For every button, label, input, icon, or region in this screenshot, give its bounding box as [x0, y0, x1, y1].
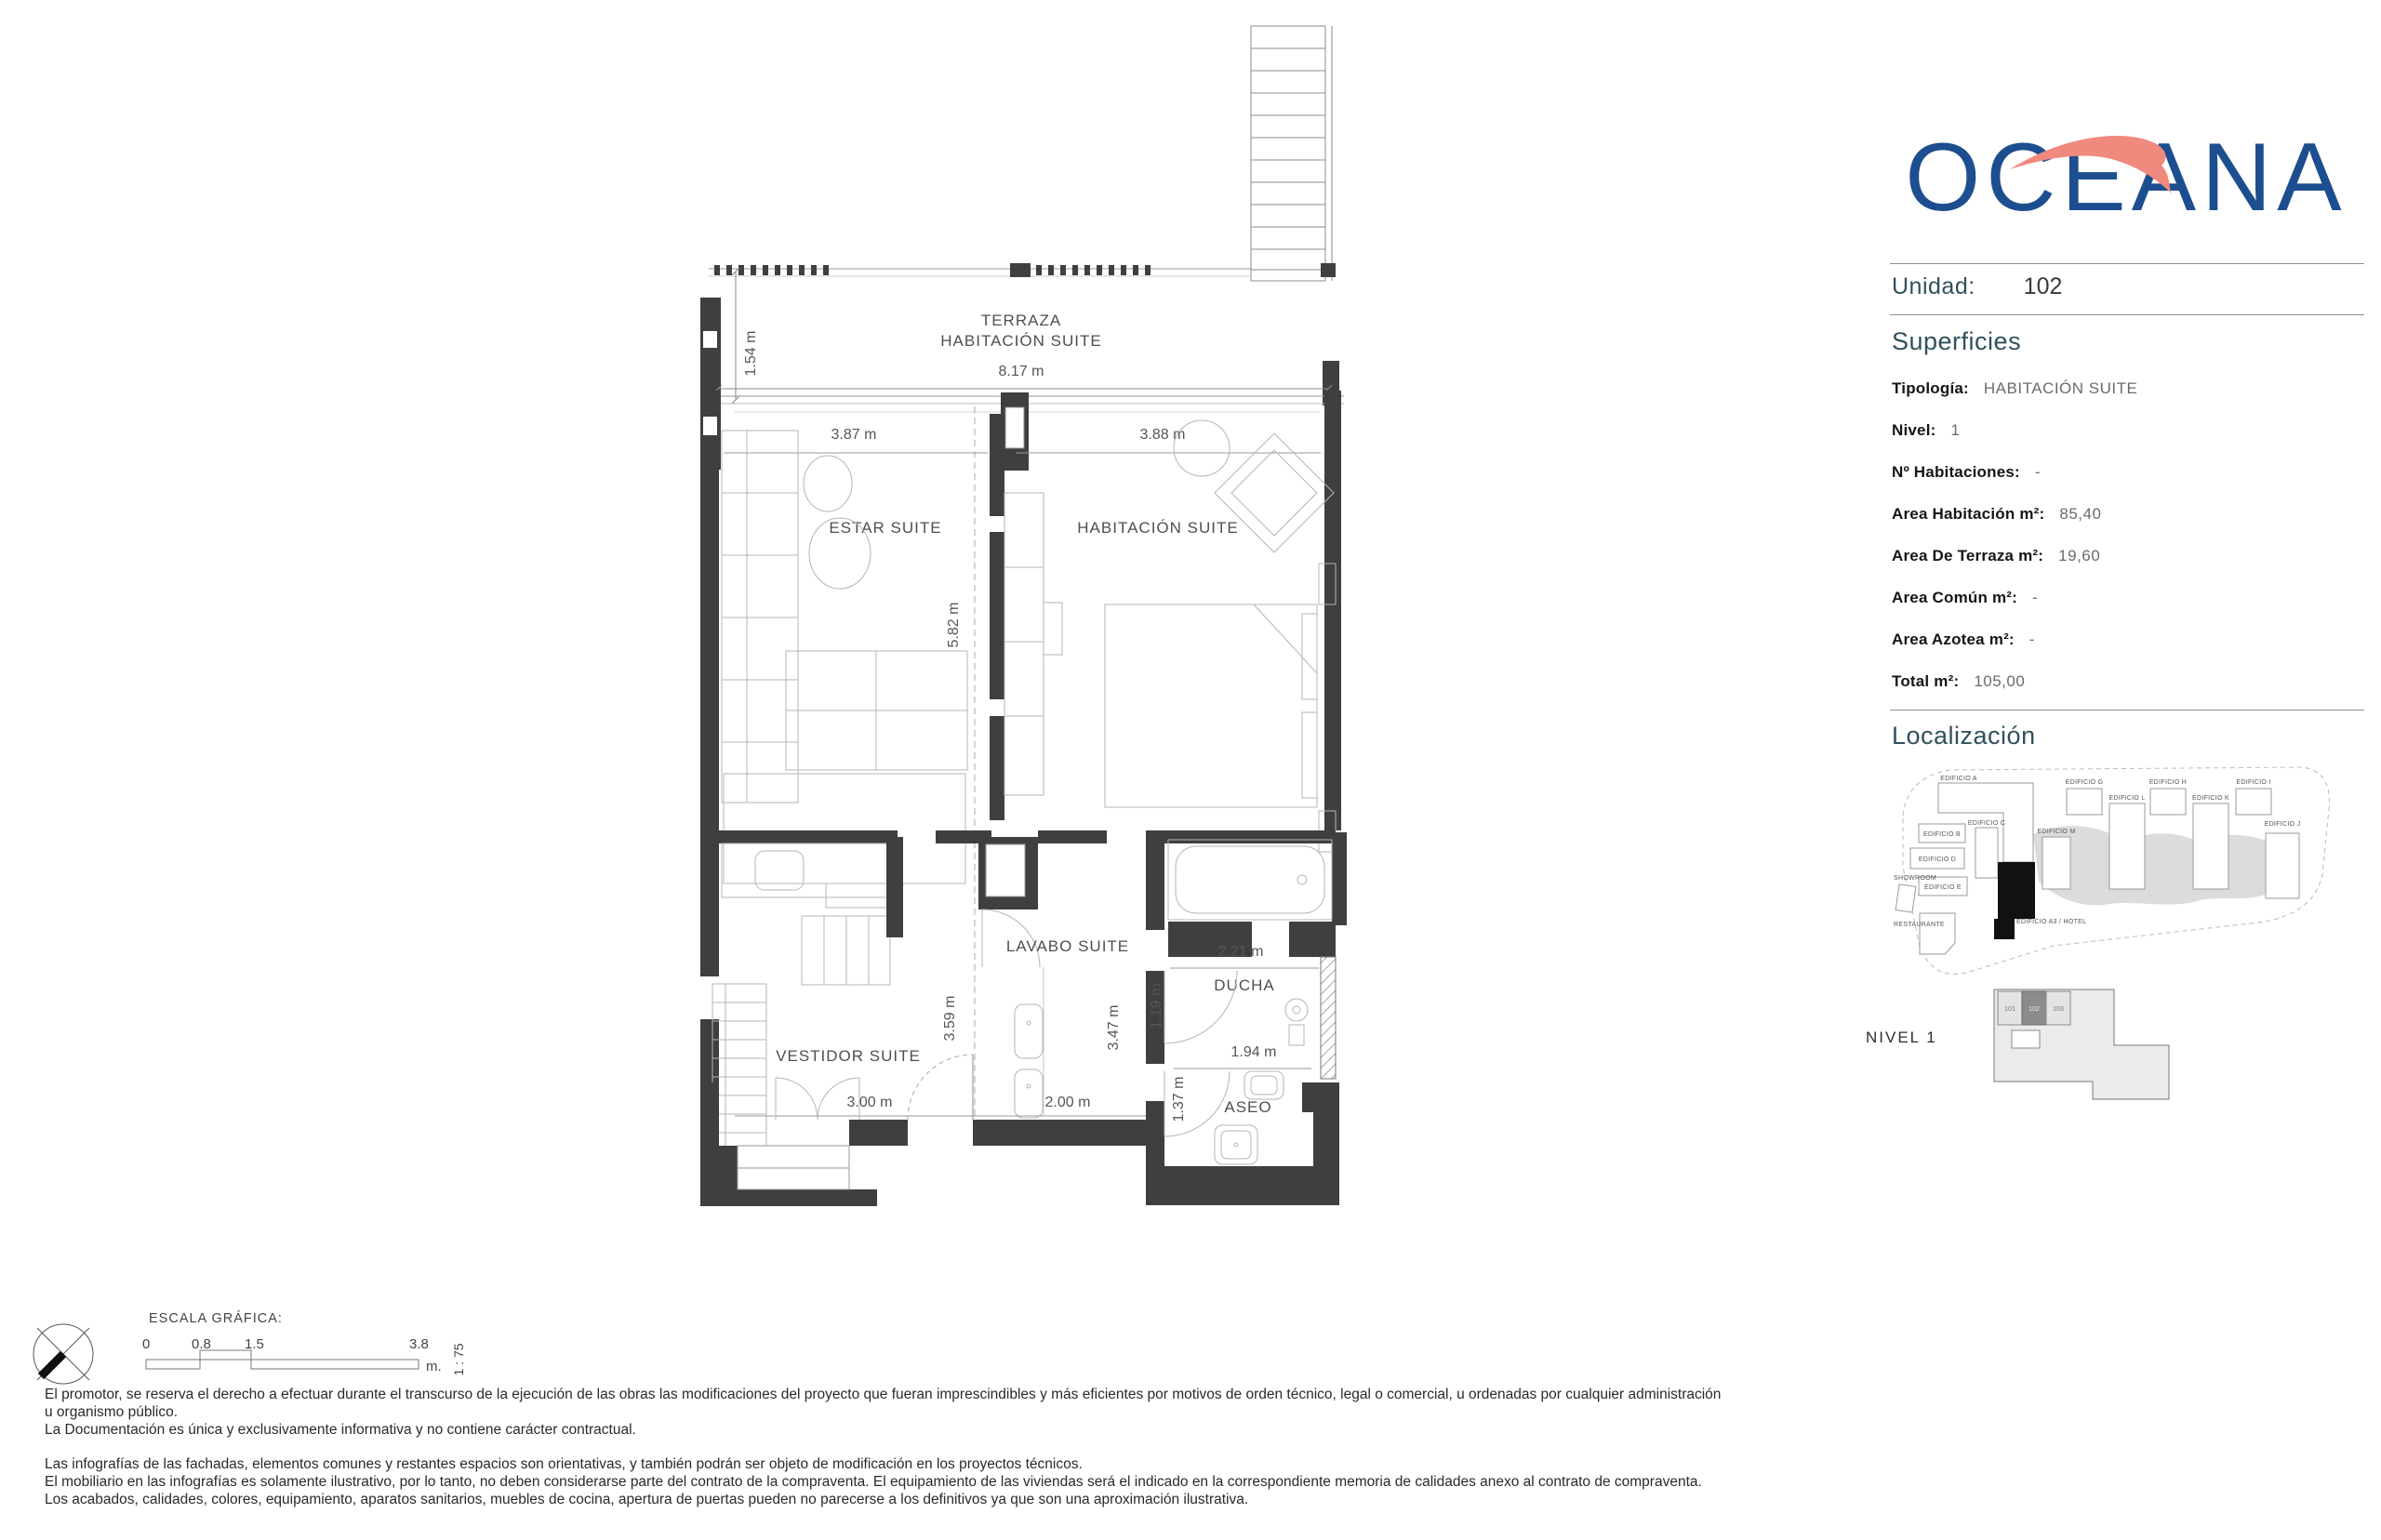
legal-disclaimer: El promotor, se reserva el derecho a efe…: [45, 1386, 2351, 1508]
localizacion-title: Localización: [1892, 722, 2036, 750]
nivel-label: NIVEL 1: [1866, 1029, 1937, 1047]
building-label: SHOWROOM: [1894, 875, 1936, 882]
row-label: Area Habitación m²:: [1892, 505, 2044, 524]
dim-habitacion-width: 3.88 m: [1140, 427, 1186, 443]
superficies-table: Tipología:HABITACIÓN SUITE Nivel:1 Nº Ha…: [1892, 379, 2364, 714]
aseo-room: 1.94 m 1.37 m ASEO: [1146, 1044, 1339, 1205]
unit-cell-number: 102: [2029, 1006, 2040, 1013]
ducha-label: DUCHA: [1214, 976, 1274, 994]
dim-aseo-height: 1.37 m: [1171, 1077, 1187, 1122]
unit-row: Unidad: 102: [1892, 273, 2364, 300]
terrace: TERRAZA HABITACIÓN SUITE 8.17 m 1.54 m: [700, 263, 1339, 405]
row-label: Area Azotea m²:: [1892, 631, 2015, 649]
bottom-walls: [700, 1055, 1150, 1206]
north-compass-icon: [33, 1324, 93, 1384]
superficies-title: Superficies: [1892, 327, 2021, 356]
scale-unit: m.: [426, 1359, 442, 1374]
dim-lavabo-height: 3.47 m: [1106, 1005, 1122, 1051]
right-wall: [1324, 470, 1341, 830]
dim-aseo-width: 1.94 m: [1231, 1044, 1277, 1060]
lavabo-label: LAVABO SUITE: [1006, 937, 1129, 955]
divider-top: [1890, 263, 2364, 264]
table-row: Total m²:105,00: [1892, 672, 2364, 714]
row-value: -: [2035, 463, 2041, 482]
scale-tick-3: 3.8: [409, 1336, 429, 1352]
building-label: EDIFICIO M: [2037, 829, 2075, 835]
building-label: EDIFICIO C: [1968, 820, 2005, 827]
aseo-label: ASEO: [1224, 1098, 1271, 1116]
row-label: Tipología:: [1892, 379, 1969, 398]
building-label: EDIFICIO A: [1940, 776, 1977, 782]
divider-unit: [1890, 314, 2364, 315]
scale-title: ESCALA GRÁFICA:: [149, 1310, 283, 1326]
row-value: 105,00: [1974, 672, 2025, 691]
row-value: 1: [1951, 421, 1961, 440]
table-row: Area Común m²:-: [1892, 589, 2364, 631]
unit-number: 102: [2024, 273, 2063, 300]
building-label: EDIFICIO A3 / HOTEL: [2016, 919, 2086, 925]
habitacion-label: HABITACIÓN SUITE: [1077, 519, 1238, 537]
habitacion-suite: HABITACIÓN SUITE: [1077, 420, 1336, 852]
building-label: EDIFICIO L: [2108, 795, 2145, 802]
scale-bar: [146, 1350, 419, 1369]
center-partition: 5.82 m: [946, 406, 1062, 1116]
unit-cell-number: 101: [2004, 1006, 2015, 1013]
vestidor-suite: VESTIDOR SUITE 3.59 m 3.00 m: [700, 837, 975, 1151]
building-label: EDIFICIO I: [2236, 779, 2270, 786]
row-label: Area De Terraza m²:: [1892, 547, 2043, 565]
unit-label: Unidad:: [1892, 273, 1975, 300]
row-value: -: [2029, 631, 2035, 649]
estar-label: ESTAR SUITE: [829, 519, 941, 537]
building-label: EDIFICIO H: [2149, 779, 2187, 786]
scale-tick-2: 1.5: [245, 1336, 264, 1352]
unit-cell-number: 103: [2053, 1006, 2064, 1013]
row-label: Nº Habitaciones:: [1892, 463, 2020, 482]
building-label: EDIFICIO E: [1924, 884, 1962, 891]
terrace-label-line1: TERRAZA: [981, 312, 1061, 329]
dim-vestidor-width: 3.00 m: [847, 1095, 893, 1110]
terrace-label-line2: HABITACIÓN SUITE: [940, 332, 1101, 350]
table-row: Tipología:HABITACIÓN SUITE: [1892, 379, 2364, 421]
disclaimer-line: El mobiliario en las infografías es sola…: [45, 1473, 2351, 1491]
table-row: Area Azotea m²:-: [1892, 631, 2364, 672]
dim-terrace-depth: 1.54 m: [743, 331, 759, 377]
oceana-logo: OCEANA: [1886, 100, 2366, 249]
building-label: EDIFICIO G: [2066, 779, 2104, 786]
balustrade: [714, 263, 1151, 277]
row-label: Nivel:: [1892, 421, 1936, 440]
row-value: 85,40: [2059, 505, 2101, 524]
building-label: EDIFICIO B: [1923, 831, 1961, 838]
floor-plan: TERRAZA HABITACIÓN SUITE 8.17 m 1.54 m 3…: [693, 19, 1353, 1228]
building-label: EDIFICIO J: [2265, 821, 2301, 828]
nivel-mini-plan: 101 102 103: [1979, 978, 2268, 1118]
row-label: Area Común m²:: [1892, 589, 2017, 607]
disclaimer-line: El promotor, se reserva el derecho a efe…: [45, 1386, 2351, 1403]
left-wall: [700, 470, 719, 830]
bathtub: [1168, 840, 1332, 920]
disclaimer-line: La Documentación es única y exclusivamen…: [45, 1421, 2351, 1439]
scale-graphic: ESCALA GRÁFICA: 0 0.8 1.5 3.8 m. 1 : 75: [19, 1302, 539, 1390]
row-value: HABITACIÓN SUITE: [1984, 379, 2137, 398]
row-value: 19,60: [2058, 547, 2100, 565]
table-row: Nº Habitaciones:-: [1892, 463, 2364, 505]
table-row: Area De Terraza m²:19,60: [1892, 547, 2364, 589]
vestidor-label: VESTIDOR SUITE: [776, 1047, 921, 1065]
building-label: EDIFICIO K: [2192, 795, 2229, 802]
dim-lavabo-width: 2.00 m: [1045, 1095, 1091, 1110]
row-value: -: [2032, 589, 2038, 607]
scale-ratio: 1 : 75: [451, 1343, 466, 1375]
staircase: [1251, 26, 1332, 281]
building-label: EDIFICIO D: [1919, 856, 1956, 863]
disclaimer-line: Los acabados, calidades, colores, equipa…: [45, 1491, 2351, 1508]
building-a3-highlight: [1994, 862, 2035, 939]
terrace-marker: [2012, 1030, 2040, 1048]
brochure-page: { "logo": { "text": "OCEANA", "blue": "#…: [0, 0, 2381, 1540]
divider-total: [1890, 710, 2364, 710]
dim-ducha-height: 1.19 m: [1149, 984, 1164, 1029]
scale-tick-1: 0.8: [192, 1336, 211, 1352]
disclaimer-line: u organismo público.: [45, 1403, 2351, 1421]
dim-ducha-width: 2.21 m: [1218, 944, 1264, 960]
scale-tick-0: 0: [142, 1336, 150, 1352]
building-label: RESTAURANTE: [1894, 922, 1945, 928]
table-row: Nivel:1: [1892, 421, 2364, 463]
disclaimer-line: Las infografías de las fachadas, element…: [45, 1455, 2351, 1473]
dim-vestidor-height: 3.59 m: [942, 996, 958, 1042]
dim-estar-width: 3.87 m: [831, 427, 877, 443]
site-map: EDIFICIO A EDIFICIO C EDIFICIO B EDIFICI…: [1894, 755, 2370, 976]
lavabo-suite: LAVABO SUITE 3.47 m 2.00 m: [975, 837, 1146, 1118]
table-row: Area Habitación m²:85,40: [1892, 505, 2364, 547]
dim-center-height: 5.82 m: [946, 603, 962, 648]
dim-terrace-width: 8.17 m: [999, 364, 1044, 379]
row-label: Total m²:: [1892, 672, 1959, 691]
